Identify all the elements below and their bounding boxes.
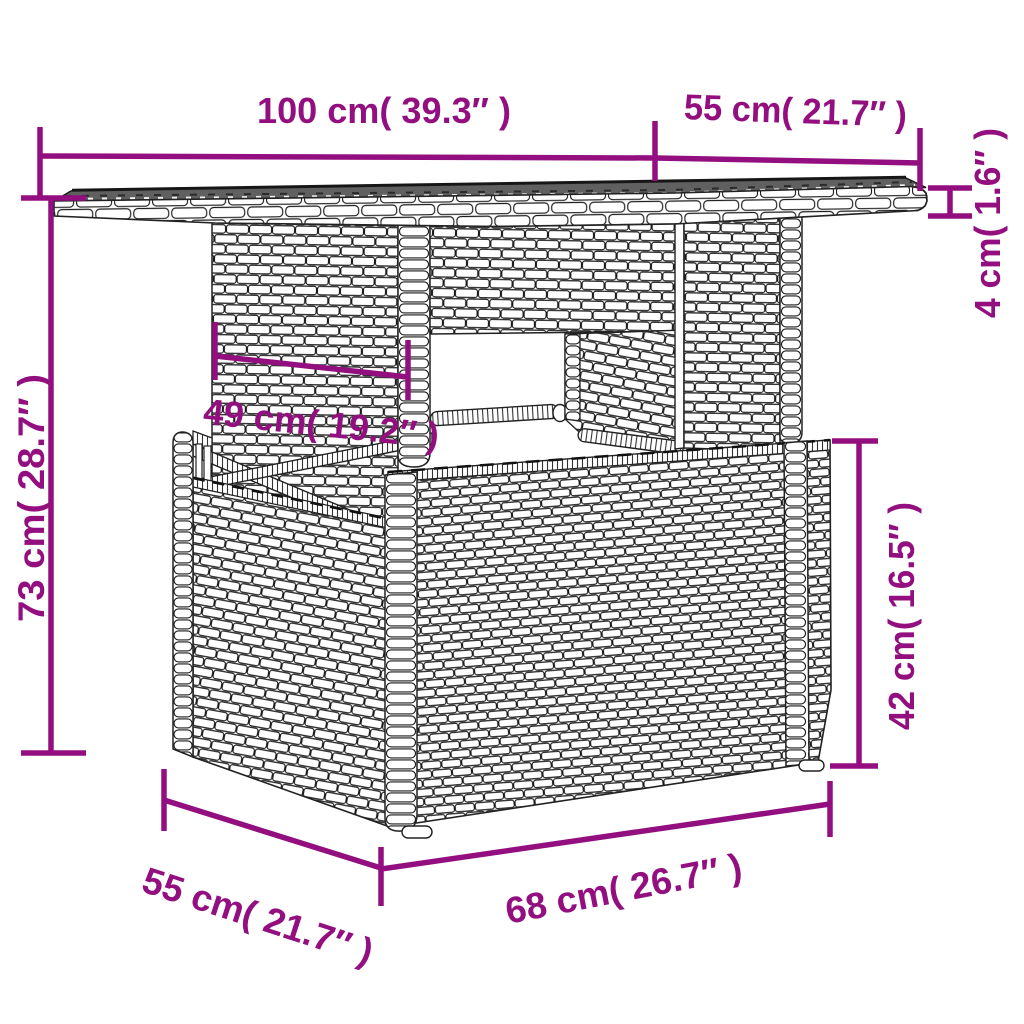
svg-text:100 cm( 39.3″ ): 100 cm( 39.3″ ) [257, 90, 511, 131]
svg-text:73 cm( 28.7″ ): 73 cm( 28.7″ ) [11, 374, 52, 622]
svg-text:4 cm( 1.6″ ): 4 cm( 1.6″ ) [967, 128, 1008, 318]
svg-text:55 cm( 21.7″ ): 55 cm( 21.7″ ) [683, 86, 907, 135]
svg-text:42 cm( 16.5″ ): 42 cm( 16.5″ ) [881, 502, 922, 730]
